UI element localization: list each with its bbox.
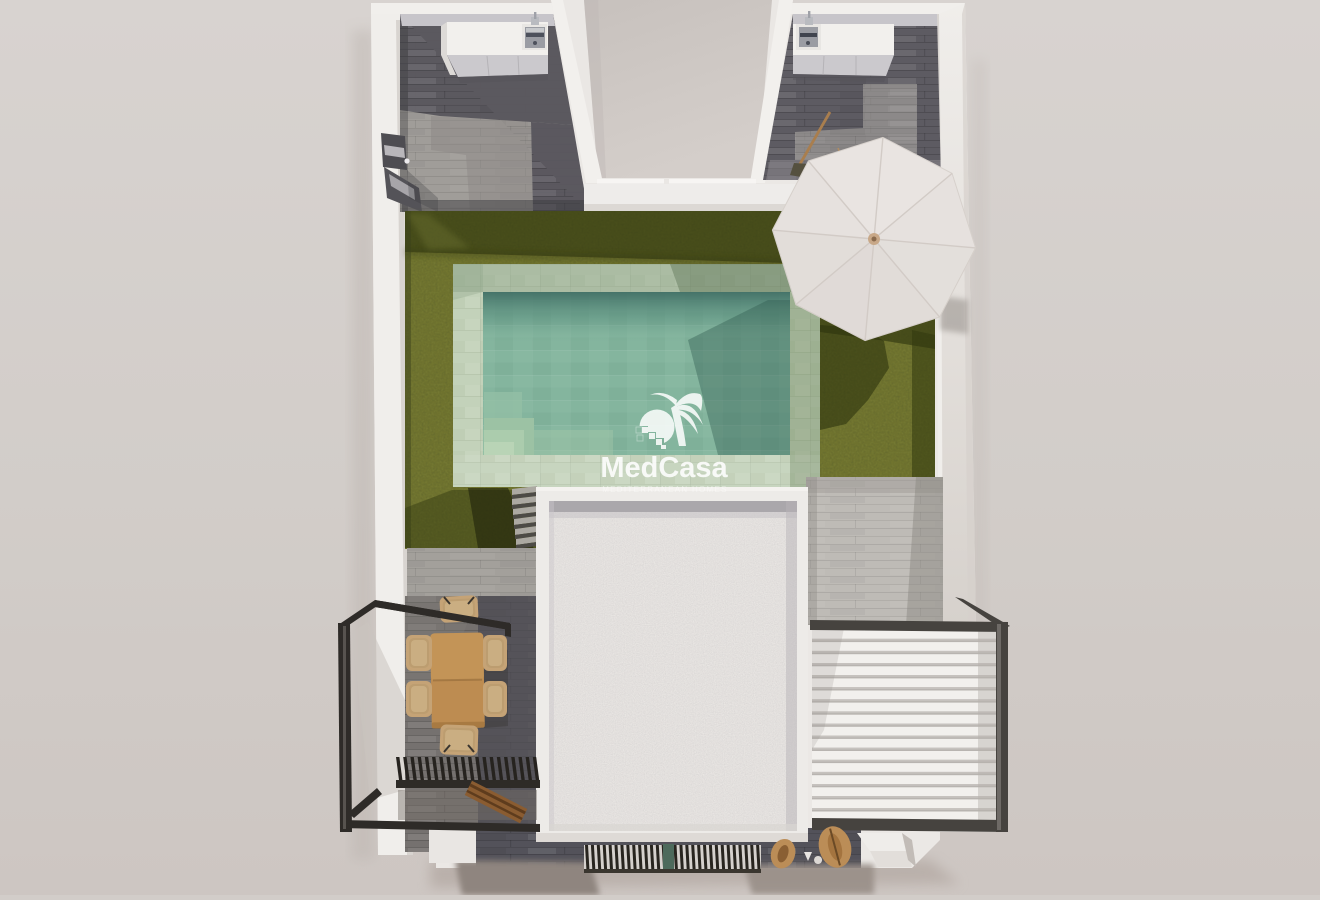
- svg-text:MEDITERRANEAN HOMES: MEDITERRANEAN HOMES: [602, 485, 728, 494]
- svg-text:MedCasa: MedCasa: [600, 452, 728, 484]
